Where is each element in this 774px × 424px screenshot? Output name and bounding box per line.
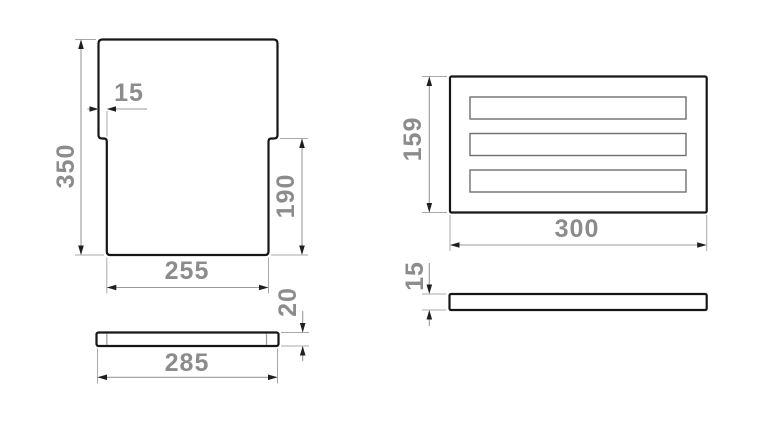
dim-255-arrow-right (259, 285, 269, 291)
dim-20-arrow-up (300, 346, 306, 356)
dim-285-arrow-left (98, 375, 108, 381)
board-side-outline (97, 333, 279, 347)
dim-159: 159 (399, 77, 447, 213)
drawing-canvas: 350 15 190 255 (0, 0, 774, 424)
technical-drawing: 350 15 190 255 (0, 0, 774, 424)
rack-slot-1 (470, 97, 686, 119)
dim-label-15-notch: 15 (114, 79, 144, 107)
rack-top-view: 159 300 (399, 77, 707, 252)
rack-side-outline (450, 294, 707, 310)
rack-slot-2 (470, 134, 686, 156)
dim-190-arrow-down (299, 246, 305, 256)
dim-350-arrow-down (78, 246, 84, 256)
dim-190: 190 (271, 139, 308, 256)
dim-15-side-arrow-up (427, 310, 433, 320)
dim-label-285: 285 (165, 349, 210, 377)
dim-label-190: 190 (272, 174, 300, 219)
dim-300: 300 (450, 215, 707, 251)
rack-slot-3 (470, 170, 686, 192)
dim-20-arrow-down (300, 323, 306, 333)
dim-300-arrow-right (697, 242, 707, 248)
dim-label-15-side: 15 (401, 261, 429, 291)
dim-159-arrow-down (427, 203, 433, 213)
dim-15-arrow-right (90, 106, 99, 111)
dim-190-arrow-up (299, 139, 305, 149)
board-side-view: 20 285 (97, 287, 310, 383)
dim-15-side: 15 (401, 261, 446, 326)
dim-159-arrow-up (427, 77, 433, 87)
dim-285: 285 (98, 349, 278, 384)
dim-300-arrow-left (450, 242, 460, 248)
board-top-view: 350 15 190 255 (52, 40, 308, 294)
dim-350-arrow-up (78, 40, 84, 50)
dim-label-159: 159 (399, 117, 427, 162)
dim-255-arrow-left (107, 285, 117, 291)
dim-label-300: 300 (555, 215, 600, 243)
dim-label-20: 20 (274, 287, 302, 317)
dim-350: 350 (52, 40, 104, 256)
dim-label-255: 255 (165, 257, 210, 285)
dim-255: 255 (107, 257, 269, 294)
dim-20: 20 (274, 287, 309, 361)
board-outline (99, 40, 278, 256)
dim-285-arrow-right (268, 375, 278, 381)
dim-label-350: 350 (52, 144, 80, 189)
rack-side-view: 15 (401, 261, 707, 326)
